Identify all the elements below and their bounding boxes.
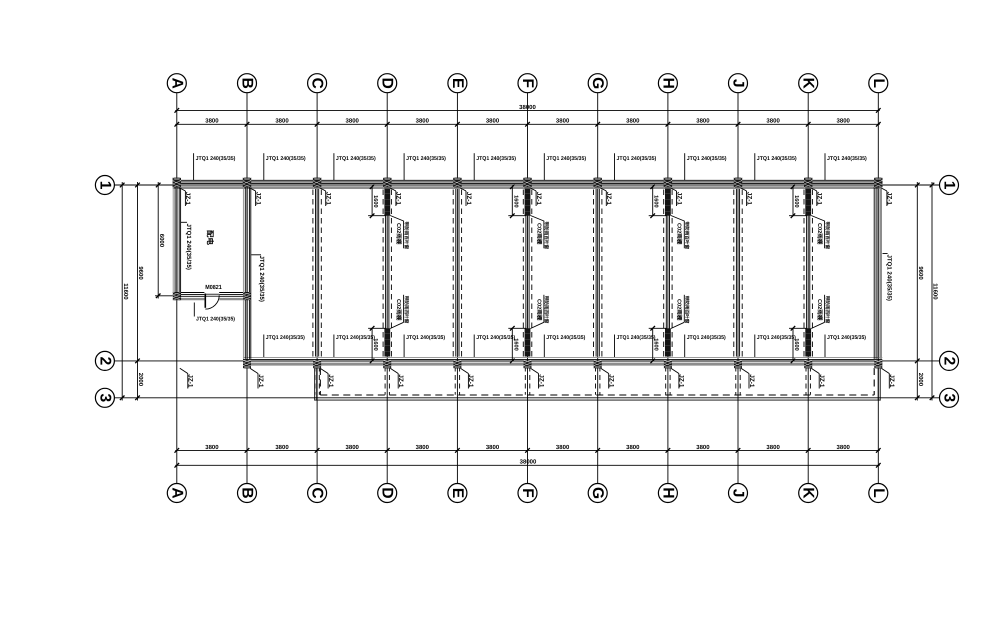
svg-text:1600: 1600 <box>653 195 659 207</box>
svg-text:JTQ1 240(35/35): JTQ1 240(35/35) <box>266 156 306 162</box>
svg-text:3800: 3800 <box>416 444 430 451</box>
svg-text:E: E <box>449 78 466 88</box>
svg-text:3800: 3800 <box>766 117 780 124</box>
svg-text:2000: 2000 <box>917 373 924 387</box>
svg-text:JZ-1: JZ-1 <box>397 374 404 388</box>
svg-text:JZ-1: JZ-1 <box>605 192 612 206</box>
svg-text:JTQ1 240(35/35): JTQ1 240(35/35) <box>196 316 235 322</box>
svg-text:1600: 1600 <box>793 195 799 207</box>
svg-text:JTQ1 240(35/35): JTQ1 240(35/35) <box>336 156 376 162</box>
svg-text:JTQ1 240(35/35): JTQ1 240(35/35) <box>546 335 585 341</box>
svg-text:JTQ1 240(35/35): JTQ1 240(35/35) <box>546 156 586 162</box>
svg-text:JTQ1 240(35/35): JTQ1 240(35/35) <box>687 156 727 162</box>
svg-text:JZ-1: JZ-1 <box>888 374 895 388</box>
svg-text:带防雨百叶窗: 带防雨百叶窗 <box>404 222 409 250</box>
svg-text:JZ-1: JZ-1 <box>745 192 752 206</box>
svg-text:JZ-1: JZ-1 <box>327 374 334 388</box>
svg-text:3800: 3800 <box>275 444 289 451</box>
svg-text:D: D <box>379 487 396 498</box>
svg-text:配电: 配电 <box>206 230 215 245</box>
svg-text:A: A <box>168 78 185 89</box>
svg-text:JTQ1 240(35/35): JTQ1 240(35/35) <box>687 335 726 341</box>
svg-text:3800: 3800 <box>205 117 219 124</box>
svg-text:L: L <box>870 78 887 87</box>
svg-text:9600: 9600 <box>137 266 144 280</box>
svg-text:JTQ1 240(35/35): JTQ1 240(35/35) <box>476 335 515 341</box>
svg-text:1: 1 <box>96 181 113 190</box>
svg-text:3800: 3800 <box>486 444 500 451</box>
svg-text:JTQ1 240(35/35): JTQ1 240(35/35) <box>196 156 236 162</box>
svg-text:C02雨棚: C02雨棚 <box>816 299 823 321</box>
svg-text:3800: 3800 <box>837 117 851 124</box>
svg-text:JZ-1: JZ-1 <box>816 192 823 206</box>
svg-text:3800: 3800 <box>626 117 640 124</box>
svg-text:JTQ1 240(35/35): JTQ1 240(35/35) <box>827 335 866 341</box>
svg-text:JZ-1: JZ-1 <box>467 374 474 388</box>
svg-text:C02雨棚: C02雨棚 <box>535 223 542 245</box>
svg-text:C02雨棚: C02雨棚 <box>535 299 542 321</box>
svg-text:JZ-1: JZ-1 <box>537 374 544 388</box>
svg-text:M0821: M0821 <box>205 284 222 291</box>
svg-text:C02雨棚: C02雨棚 <box>676 223 683 245</box>
svg-text:JTQ1 240(35/35): JTQ1 240(35/35) <box>617 156 657 162</box>
svg-text:K: K <box>800 487 817 499</box>
svg-text:6000: 6000 <box>158 234 165 248</box>
svg-text:JZ-1: JZ-1 <box>184 192 191 206</box>
svg-text:JTQ1 240(35/35): JTQ1 240(35/35) <box>617 335 656 341</box>
svg-text:D: D <box>379 78 396 89</box>
svg-text:9600: 9600 <box>917 266 924 280</box>
svg-text:带防雨百叶窗: 带防雨百叶窗 <box>685 222 690 250</box>
svg-text:2: 2 <box>96 357 113 366</box>
svg-text:3800: 3800 <box>556 444 570 451</box>
svg-text:JTQ1 240(35/35): JTQ1 240(35/35) <box>266 335 305 341</box>
svg-text:JZ-1: JZ-1 <box>465 192 472 206</box>
svg-text:3800: 3800 <box>556 117 570 124</box>
svg-text:K: K <box>800 78 817 90</box>
svg-text:JTQ1 240(35/35): JTQ1 240(35/35) <box>757 156 797 162</box>
svg-text:带防雨百叶窗: 带防雨百叶窗 <box>404 296 409 324</box>
svg-text:11600: 11600 <box>122 283 129 300</box>
svg-text:E: E <box>449 488 466 498</box>
svg-text:B: B <box>239 487 256 498</box>
svg-text:H: H <box>659 487 676 498</box>
svg-text:A: A <box>168 487 185 498</box>
svg-text:3800: 3800 <box>626 444 640 451</box>
svg-text:JZ-1: JZ-1 <box>678 374 685 388</box>
svg-text:JTQ1 240(35/35): JTQ1 240(35/35) <box>406 335 445 341</box>
svg-text:B: B <box>239 78 256 89</box>
svg-text:JTQ1 240(35/35): JTQ1 240(35/35) <box>258 256 265 302</box>
svg-text:J: J <box>730 489 747 498</box>
svg-text:3800: 3800 <box>205 444 219 451</box>
svg-text:JZ-1: JZ-1 <box>257 374 264 388</box>
svg-text:3800: 3800 <box>696 444 710 451</box>
svg-text:2: 2 <box>941 357 958 366</box>
svg-text:带防雨百叶窗: 带防雨百叶窗 <box>825 296 830 324</box>
svg-text:JZ-1: JZ-1 <box>325 192 332 206</box>
svg-text:3800: 3800 <box>486 117 500 124</box>
svg-text:11600: 11600 <box>932 283 939 300</box>
svg-text:带防雨百叶窗: 带防雨百叶窗 <box>544 296 549 324</box>
svg-text:JZ-1: JZ-1 <box>748 374 755 388</box>
svg-text:JZ-1: JZ-1 <box>535 192 542 206</box>
svg-text:3800: 3800 <box>346 444 360 451</box>
svg-text:JZ-1: JZ-1 <box>187 374 194 388</box>
svg-text:3: 3 <box>96 393 113 402</box>
svg-text:JZ-1: JZ-1 <box>254 192 261 206</box>
svg-text:C02雨棚: C02雨棚 <box>676 299 683 321</box>
svg-text:C: C <box>309 78 326 89</box>
svg-text:JTQ1 240(35/35): JTQ1 240(35/35) <box>336 335 375 341</box>
svg-text:3800: 3800 <box>275 117 289 124</box>
svg-text:J: J <box>730 79 747 88</box>
svg-text:JZ-1: JZ-1 <box>608 374 615 388</box>
svg-text:JZ-1: JZ-1 <box>886 192 893 206</box>
svg-text:JTQ1 240(35/35): JTQ1 240(35/35) <box>885 255 892 301</box>
svg-text:JTQ1 240(35/35): JTQ1 240(35/35) <box>757 335 796 341</box>
svg-text:带防雨百叶窗: 带防雨百叶窗 <box>544 222 549 250</box>
svg-text:JTQ1 240(35/35): JTQ1 240(35/35) <box>406 156 446 162</box>
svg-text:2000: 2000 <box>137 373 144 387</box>
svg-text:1600: 1600 <box>512 195 518 207</box>
svg-text:C02雨棚: C02雨棚 <box>395 223 402 245</box>
svg-text:3800: 3800 <box>416 117 430 124</box>
svg-text:JTQ1 240(35/35): JTQ1 240(35/35) <box>185 224 192 270</box>
svg-text:3800: 3800 <box>766 444 780 451</box>
svg-text:F: F <box>519 488 536 497</box>
svg-text:38000: 38000 <box>519 104 536 111</box>
svg-text:3800: 3800 <box>696 117 710 124</box>
svg-text:JTQ1 240(35/35): JTQ1 240(35/35) <box>476 156 516 162</box>
svg-text:L: L <box>870 488 887 497</box>
svg-text:H: H <box>659 78 676 89</box>
svg-text:3800: 3800 <box>837 444 851 451</box>
svg-text:G: G <box>589 487 606 499</box>
svg-text:C: C <box>309 487 326 498</box>
svg-text:38000: 38000 <box>520 459 537 466</box>
svg-text:JTQ1 240(35/35): JTQ1 240(35/35) <box>827 156 867 162</box>
svg-text:G: G <box>589 77 606 89</box>
svg-text:JZ-1: JZ-1 <box>675 192 682 206</box>
svg-text:C02雨棚: C02雨棚 <box>395 299 402 321</box>
svg-text:F: F <box>519 78 536 87</box>
svg-text:带防雨百叶窗: 带防雨百叶窗 <box>685 296 690 324</box>
svg-text:1600: 1600 <box>372 195 378 207</box>
svg-text:JZ-1: JZ-1 <box>818 374 825 388</box>
svg-text:JZ-1: JZ-1 <box>395 192 402 206</box>
svg-text:带防雨百叶窗: 带防雨百叶窗 <box>825 222 830 250</box>
svg-text:3800: 3800 <box>346 117 360 124</box>
svg-text:1: 1 <box>941 181 958 190</box>
svg-text:C02雨棚: C02雨棚 <box>816 223 823 245</box>
svg-text:3: 3 <box>941 393 958 402</box>
